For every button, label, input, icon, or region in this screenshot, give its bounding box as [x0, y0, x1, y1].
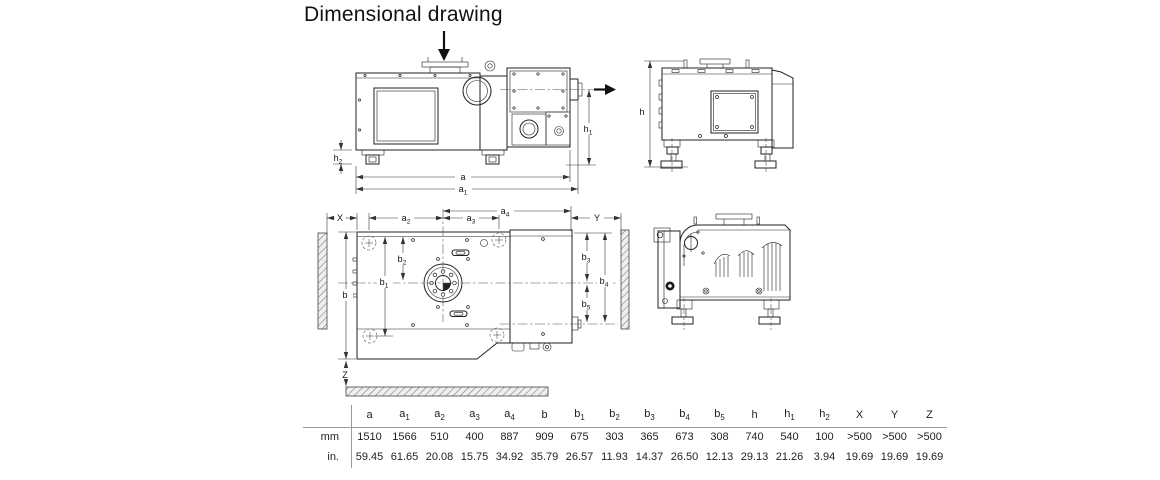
value-in-b4: 26.50 [667, 448, 702, 468]
value-mm-a4: 887 [492, 428, 527, 448]
col-header-b3: b3 [632, 405, 667, 428]
exhaust-arrow-icon [605, 84, 616, 95]
col-header-b5: b5 [702, 405, 737, 428]
value-mm-a1: 1566 [387, 428, 422, 448]
value-in-b5: 12.13 [702, 448, 737, 468]
value-in-a: 59.45 [352, 448, 388, 468]
value-mm-b3: 365 [632, 428, 667, 448]
col-header-b2: b2 [597, 405, 632, 428]
value-in-a2: 20.08 [422, 448, 457, 468]
col-header-b: b [527, 405, 562, 428]
value-in-Z: 19.69 [912, 448, 947, 468]
value-in-X: 19.69 [842, 448, 877, 468]
col-header-a1: a1 [387, 405, 422, 428]
col-header-b4: b4 [667, 405, 702, 428]
value-mm-a3: 400 [457, 428, 492, 448]
col-header-X: X [842, 405, 877, 428]
drawing-plan-view: X a2 a3 a4 Y b Z b1 b2 b3 [318, 204, 629, 396]
value-in-a4: 34.92 [492, 448, 527, 468]
value-mm-b1: 675 [562, 428, 597, 448]
dim-label-Z: Z [342, 370, 348, 380]
value-mm-b5: 308 [702, 428, 737, 448]
col-header-h1: h1 [772, 405, 807, 428]
value-in-a3: 15.75 [457, 448, 492, 468]
value-in-h2: 3.94 [807, 448, 842, 468]
value-mm-a: 1510 [352, 428, 388, 448]
value-mm-a2: 510 [422, 428, 457, 448]
value-mm-h2: 100 [807, 428, 842, 448]
drawing-end-view-left: h [636, 59, 793, 172]
value-mm-b4: 673 [667, 428, 702, 448]
table-corner-cell [303, 405, 352, 428]
col-header-a2: a2 [422, 405, 457, 428]
col-header-Z: Z [912, 405, 947, 428]
value-in-Y: 19.69 [877, 448, 912, 468]
row-label-mm: mm [303, 428, 352, 448]
col-header-a3: a3 [457, 405, 492, 428]
value-mm-b2: 303 [597, 428, 632, 448]
value-in-h: 29.13 [737, 448, 772, 468]
value-mm-Z: >500 [912, 428, 947, 448]
col-header-b1: b1 [562, 405, 597, 428]
col-header-h: h [737, 405, 772, 428]
value-mm-X: >500 [842, 428, 877, 448]
dimensional-drawing-canvas: h2 h1 a a1 h [0, 0, 1160, 404]
value-in-h1: 21.26 [772, 448, 807, 468]
dim-label-X: X [337, 213, 343, 223]
clearance-wall-bottom [346, 387, 548, 396]
col-header-Y: Y [877, 405, 912, 428]
value-mm-b: 909 [527, 428, 562, 448]
value-in-a1: 61.65 [387, 448, 422, 468]
col-header-a: a [352, 405, 388, 428]
clearance-wall-right [621, 230, 629, 329]
row-label-in: in. [303, 448, 352, 468]
drawing-side-view: h2 h1 a a1 [330, 31, 616, 197]
value-in-b: 35.79 [527, 448, 562, 468]
col-header-h2: h2 [807, 405, 842, 428]
dim-label-Y: Y [594, 213, 600, 223]
value-in-b1: 26.57 [562, 448, 597, 468]
dimensions-table: aa1a2a3a4bb1b2b3b4b5hh1h2XYZmm1510156651… [303, 405, 947, 468]
dim-label-h: h [639, 107, 644, 117]
drawing-end-view-right [654, 214, 790, 330]
dim-label-a: a [460, 172, 465, 182]
vent-louvers [714, 242, 782, 291]
value-in-b2: 11.93 [597, 448, 632, 468]
value-mm-h1: 540 [772, 428, 807, 448]
inlet-arrow-icon [438, 49, 450, 61]
clearance-wall-left [318, 233, 327, 329]
value-in-b3: 14.37 [632, 448, 667, 468]
value-mm-Y: >500 [877, 428, 912, 448]
dim-label-b: b [342, 290, 347, 300]
col-header-a4: a4 [492, 405, 527, 428]
value-mm-h: 740 [737, 428, 772, 448]
